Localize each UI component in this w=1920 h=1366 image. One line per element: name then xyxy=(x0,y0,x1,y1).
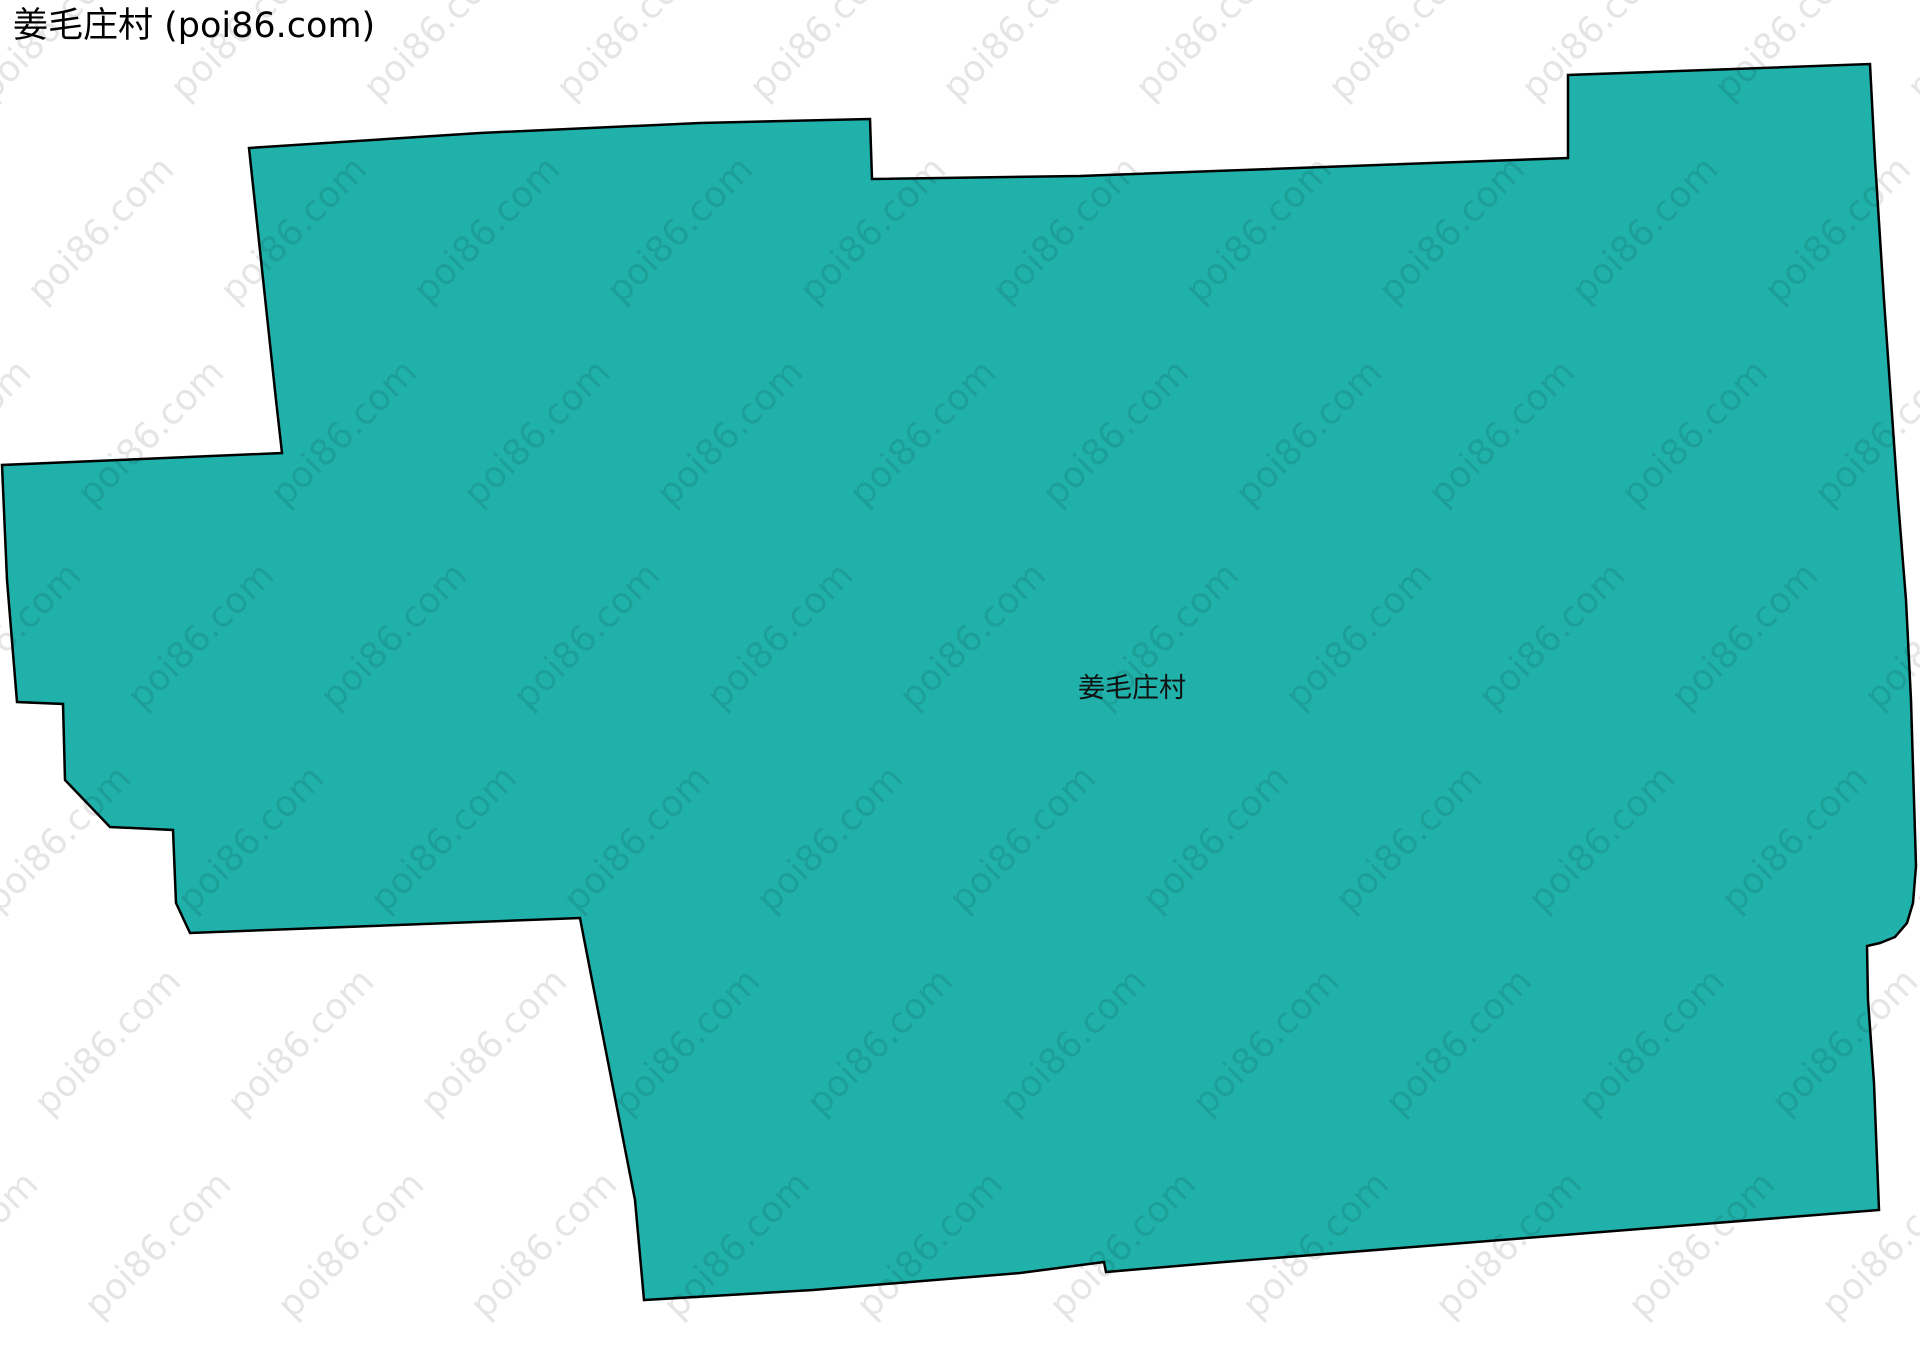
map-canvas: 姜毛庄村 xyxy=(0,0,1920,1366)
region-boundary-polygon xyxy=(2,64,1916,1300)
page-title: 姜毛庄村 (poi86.com) xyxy=(13,5,375,47)
region-label: 姜毛庄村 xyxy=(1078,673,1186,704)
map-page: 姜毛庄村 poi86.compoi86.compoi86.compoi86.co… xyxy=(0,0,1920,1366)
